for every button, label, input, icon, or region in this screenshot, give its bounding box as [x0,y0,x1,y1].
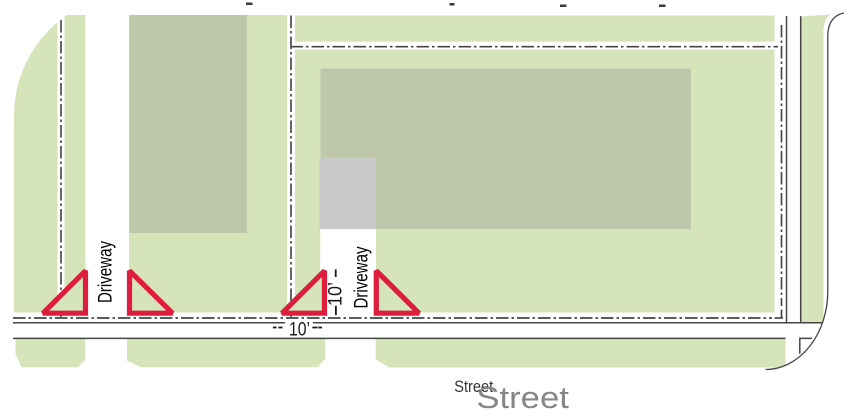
svg-text:Street: Street [476,380,569,413]
svg-text:Driveway: Driveway [96,241,117,303]
svg-text:Driveway: Driveway [352,246,373,308]
svg-text:10’: 10’ [325,282,347,306]
svg-text:10’: 10’ [289,318,310,340]
